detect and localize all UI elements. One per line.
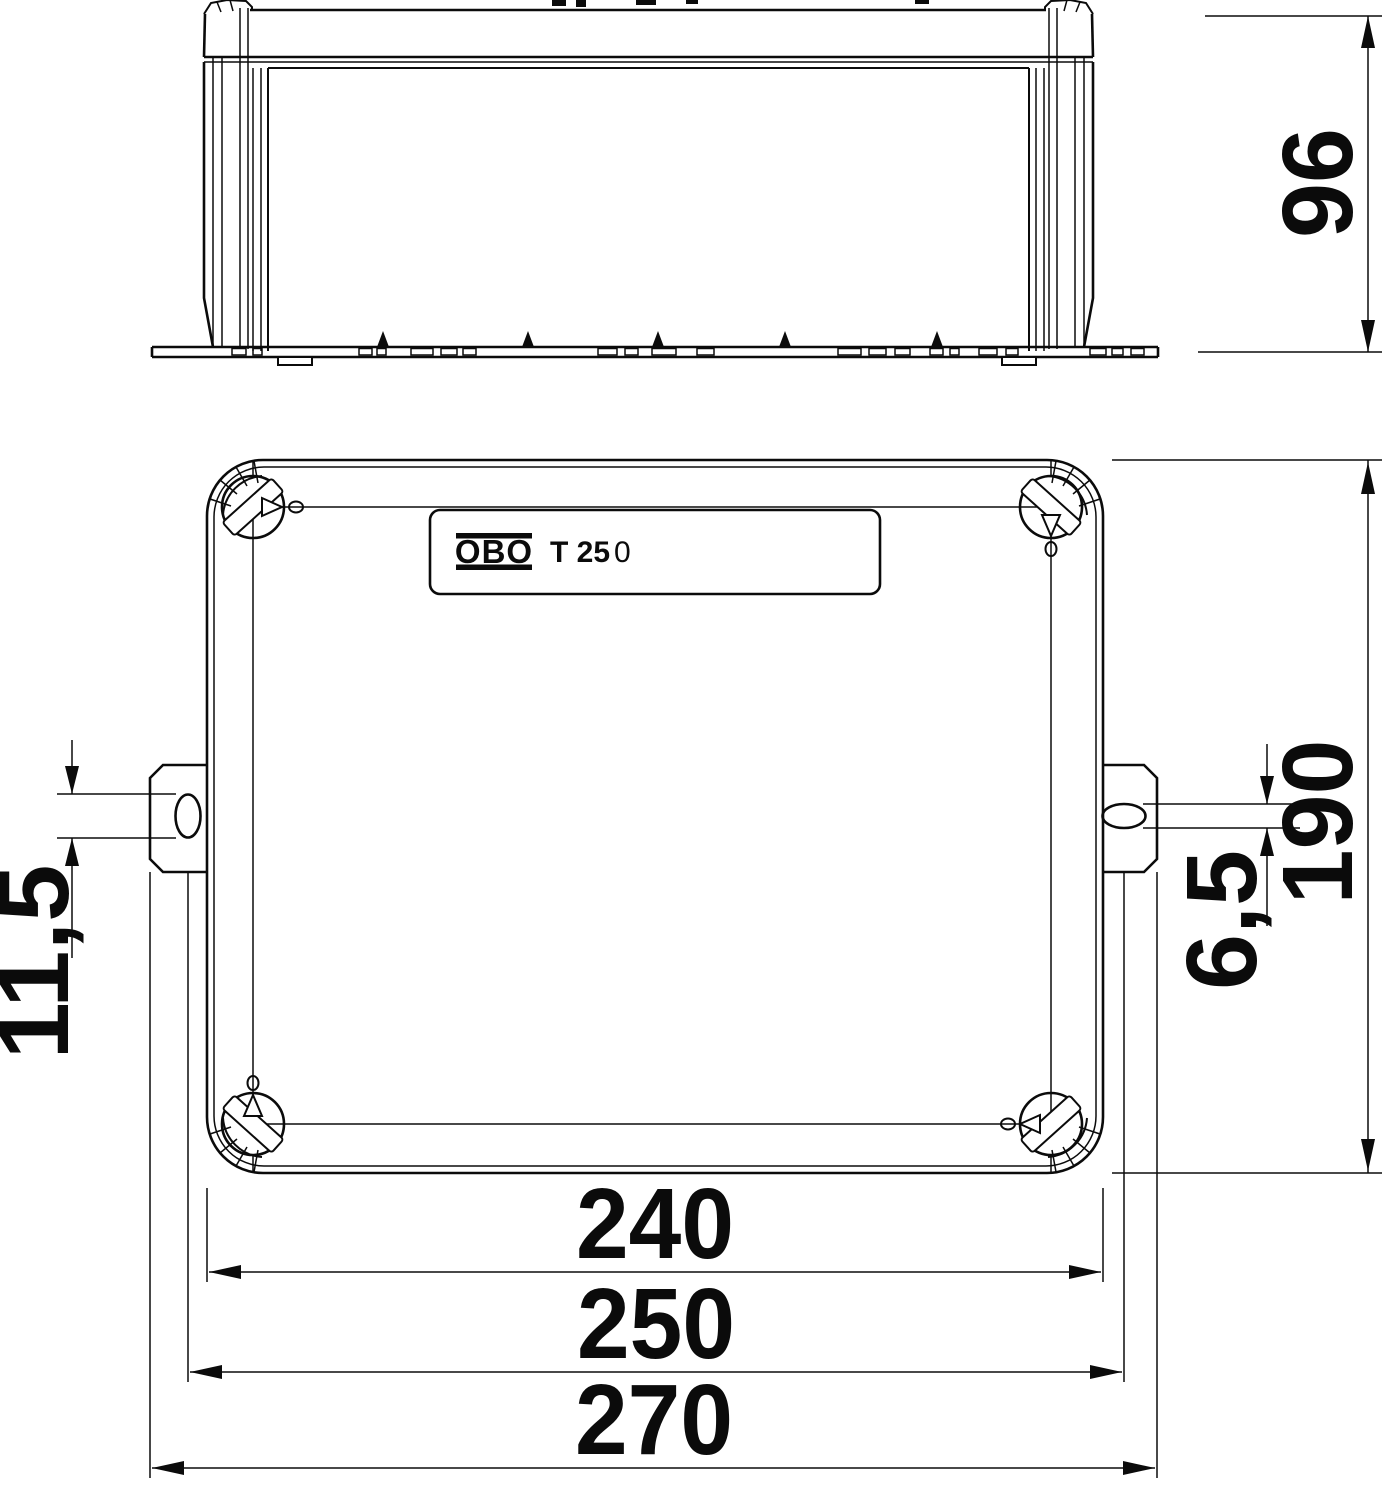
label-plate: OBO T 250 — [430, 510, 880, 594]
side-view — [152, 0, 1158, 365]
mounting-lug-right — [1103, 765, 1158, 872]
dim-label-270: 270 — [575, 1364, 733, 1476]
dim-190: 190 — [1112, 460, 1382, 1173]
dim-label-240: 240 — [576, 1168, 734, 1280]
plan-view: OBO T 250 — [150, 460, 1157, 1173]
technical-drawing-canvas: 96 — [0, 0, 1385, 1500]
top-edge-fragments — [552, 0, 929, 7]
base-flange — [152, 331, 1158, 365]
slot-hole-left — [176, 795, 201, 838]
flange-details — [232, 349, 1144, 356]
screw-top-left — [222, 461, 303, 538]
slot-hole-right — [1103, 804, 1146, 828]
obo-logo: OBO — [455, 533, 533, 570]
model-text: T 250 — [550, 536, 631, 569]
mounting-lug-left — [150, 765, 207, 872]
dim-96: 96 — [1198, 16, 1382, 352]
dimension-drawing-svg: 96 — [0, 0, 1385, 1500]
dim-label-11-5: 11,5 — [0, 865, 90, 1060]
dim-240: 240 — [209, 1168, 1101, 1280]
dim-270: 270 — [152, 1364, 1155, 1476]
dim-label-190: 190 — [1262, 740, 1374, 905]
flange-marker-ticks — [377, 331, 943, 347]
dim-label-96: 96 — [1262, 128, 1374, 238]
obo-logo-text: OBO — [455, 533, 533, 570]
